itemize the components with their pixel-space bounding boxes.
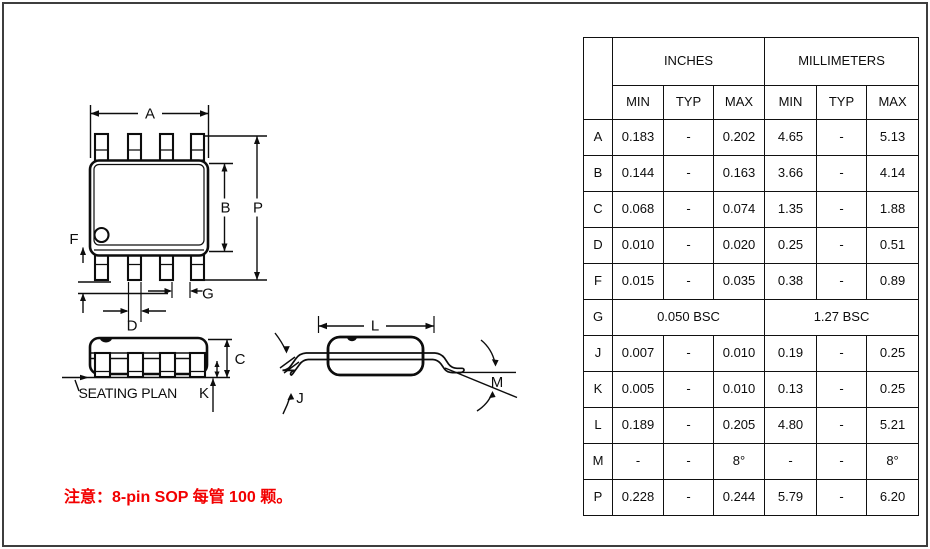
cell: - [664, 120, 714, 156]
package-body-end [328, 337, 423, 375]
arrowhead [80, 248, 86, 256]
cell: 0.38 [765, 264, 817, 300]
cell: 0.068 [613, 192, 664, 228]
pin [128, 134, 141, 161]
pin [160, 134, 173, 161]
cell: - [664, 444, 714, 480]
dim-label-l: L [371, 318, 379, 335]
table-row: F 0.015 - 0.035 0.38 - 0.89 [584, 264, 919, 300]
cell: 1.27 BSC [765, 300, 919, 336]
cell: - [664, 480, 714, 516]
dimension-table: INCHES MILLIMETERS MIN TYP MAX MIN TYP M… [583, 37, 919, 516]
arrowhead [254, 272, 260, 280]
cell: 4.80 [765, 408, 817, 444]
col-header: MIN [765, 86, 817, 120]
inches-header: INCHES [613, 38, 765, 86]
seating-plan-label: SEATING PLAN [79, 385, 177, 401]
cell: 0.189 [613, 408, 664, 444]
pin [190, 353, 205, 377]
cell: 8° [867, 444, 919, 480]
note-text: 注意：8-pin SOP 每管 100 颗。 [64, 483, 292, 507]
cell: - [765, 444, 817, 480]
arrowhead [254, 136, 260, 144]
arrowhead [210, 379, 216, 387]
cell: 0.51 [867, 228, 919, 264]
cell: 0.020 [714, 228, 765, 264]
arrowhead [319, 323, 328, 329]
cell: 1.35 [765, 192, 817, 228]
cell: 0.205 [714, 408, 765, 444]
cell: 0.228 [613, 480, 664, 516]
dim-cell: M [584, 444, 613, 480]
cell: - [817, 480, 867, 516]
dim-cell: A [584, 120, 613, 156]
pin [128, 353, 143, 377]
cell: 0.163 [714, 156, 765, 192]
table-row: D 0.010 - 0.020 0.25 - 0.51 [584, 228, 919, 264]
dim-cell: G [584, 300, 613, 336]
cell: - [664, 192, 714, 228]
arrowhead [80, 375, 89, 381]
cell: 0.202 [714, 120, 765, 156]
dim-label-a: A [145, 106, 155, 123]
arrowhead [214, 372, 219, 378]
cell: - [613, 444, 664, 480]
top-view: A B [69, 104, 267, 335]
arrowhead [141, 308, 149, 314]
pin [128, 255, 141, 280]
cell: 0.015 [613, 264, 664, 300]
pin [160, 255, 173, 280]
cell: 5.21 [867, 408, 919, 444]
arrowhead [91, 110, 100, 116]
unit-header-row: INCHES MILLIMETERS [584, 38, 919, 86]
table-row: L 0.189 - 0.205 4.80 - 5.21 [584, 408, 919, 444]
table-row: J 0.007 - 0.010 0.19 - 0.25 [584, 336, 919, 372]
dim-label-m: M [491, 374, 504, 391]
pin [95, 353, 110, 377]
arrowhead [224, 340, 230, 348]
dim-label-f: F [69, 231, 78, 248]
table-row: P 0.228 - 0.244 5.79 - 6.20 [584, 480, 919, 516]
arrowhead [492, 359, 499, 366]
cell: - [817, 192, 867, 228]
dim-label-p: P [253, 200, 263, 217]
cell: - [817, 264, 867, 300]
arrowhead [80, 294, 86, 302]
cell: 0.007 [613, 336, 664, 372]
pin [95, 134, 108, 161]
cell: - [817, 120, 867, 156]
cell: - [664, 264, 714, 300]
cell: 6.20 [867, 480, 919, 516]
arrowhead [287, 393, 294, 400]
cell: 0.074 [714, 192, 765, 228]
col-header-row: MIN TYP MAX MIN TYP MAX [584, 86, 919, 120]
col-header: TYP [664, 86, 714, 120]
cell: 3.66 [765, 156, 817, 192]
cell: 4.65 [765, 120, 817, 156]
cell: 0.005 [613, 372, 664, 408]
arrowhead [121, 308, 129, 314]
arc-arrow [477, 394, 492, 412]
side-view: SEATING PLAN C K [62, 338, 246, 412]
cell: - [664, 336, 714, 372]
cell: 0.010 [714, 372, 765, 408]
cell: 0.010 [714, 336, 765, 372]
dim-cell: K [584, 372, 613, 408]
cell: - [817, 156, 867, 192]
col-header: MIN [613, 86, 664, 120]
arrowhead [190, 288, 198, 294]
arrowhead [426, 323, 435, 329]
cell: 0.25 [867, 372, 919, 408]
arrowhead [200, 110, 209, 116]
dim-label-b: B [220, 200, 230, 217]
arrowhead [222, 164, 228, 172]
arrowhead [222, 244, 228, 252]
cell: 0.010 [613, 228, 664, 264]
cell: 0.89 [867, 264, 919, 300]
dim-label-k: K [199, 385, 209, 402]
table-row: M - - 8° - - 8° [584, 444, 919, 480]
end-view: L M [275, 316, 517, 414]
cell: 0.13 [765, 372, 817, 408]
table-row-bsc: G 0.050 BSC 1.27 BSC [584, 300, 919, 336]
cell: 0.183 [613, 120, 664, 156]
cell: 4.14 [867, 156, 919, 192]
arrowhead [165, 288, 173, 294]
table-row: B 0.144 - 0.163 3.66 - 4.14 [584, 156, 919, 192]
dim-cell: C [584, 192, 613, 228]
col-header: MAX [714, 86, 765, 120]
corner-cell [584, 38, 613, 120]
col-header: TYP [817, 86, 867, 120]
cell: 5.13 [867, 120, 919, 156]
dim-label-g: G [202, 286, 214, 303]
millimeters-header: MILLIMETERS [765, 38, 919, 86]
dim-cell: J [584, 336, 613, 372]
col-header: MAX [867, 86, 919, 120]
table-row: C 0.068 - 0.074 1.35 - 1.88 [584, 192, 919, 228]
cell: 0.19 [765, 336, 817, 372]
lead-right-upper [435, 353, 463, 368]
pin [160, 353, 175, 377]
cell: - [817, 372, 867, 408]
cell: 0.050 BSC [613, 300, 765, 336]
dim-label-d: D [127, 318, 138, 335]
arrowhead [283, 346, 290, 353]
cell: 5.79 [765, 480, 817, 516]
pin [191, 255, 204, 280]
arrowhead [489, 391, 496, 398]
dim-cell: B [584, 156, 613, 192]
table-row: K 0.005 - 0.010 0.13 - 0.25 [584, 372, 919, 408]
dim-cell: L [584, 408, 613, 444]
pin [191, 134, 204, 161]
cell: 0.035 [714, 264, 765, 300]
cell: 0.244 [714, 480, 765, 516]
dim-label-c: C [235, 351, 246, 368]
pin1-indicator [95, 228, 109, 242]
cell: - [817, 336, 867, 372]
dim-cell: F [584, 264, 613, 300]
cell: - [817, 228, 867, 264]
cell: - [664, 408, 714, 444]
cell: 0.25 [867, 336, 919, 372]
pin [95, 255, 108, 280]
dim-label-j: J [296, 390, 304, 407]
package-body [90, 161, 208, 256]
page: A B [0, 0, 930, 549]
cell: 1.88 [867, 192, 919, 228]
table-row: A 0.183 - 0.202 4.65 - 5.13 [584, 120, 919, 156]
cell: - [817, 444, 867, 480]
cell: - [817, 408, 867, 444]
cell: - [664, 372, 714, 408]
cell: - [664, 228, 714, 264]
arrowhead [214, 361, 219, 367]
dim-cell: P [584, 480, 613, 516]
arrowhead [224, 370, 230, 378]
cell: - [664, 156, 714, 192]
cell: 8° [714, 444, 765, 480]
cell: 0.144 [613, 156, 664, 192]
cell: 0.25 [765, 228, 817, 264]
dim-cell: D [584, 228, 613, 264]
